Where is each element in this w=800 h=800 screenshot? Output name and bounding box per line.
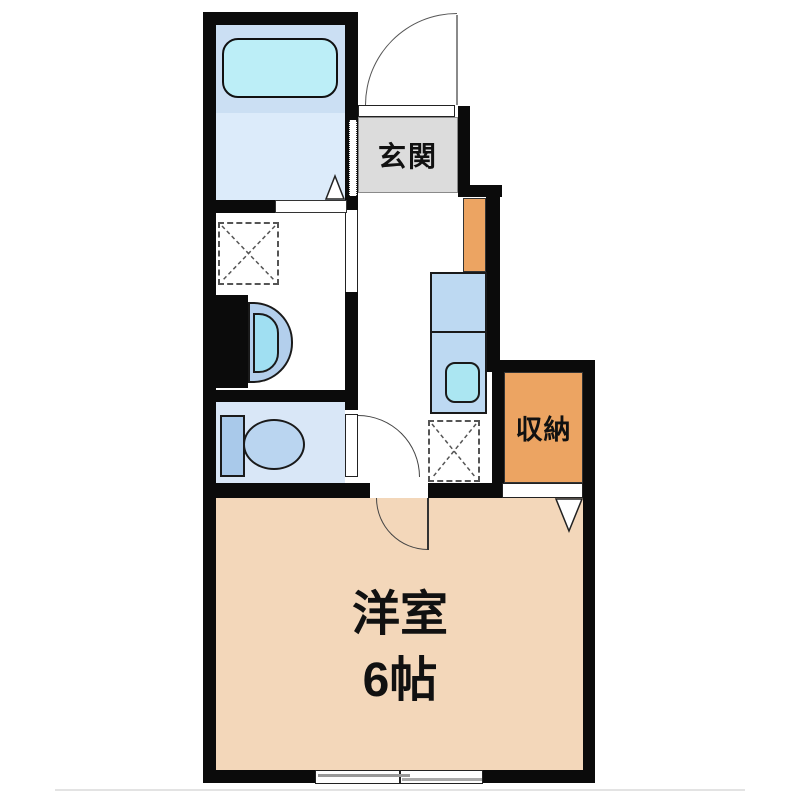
wall	[428, 483, 502, 498]
room-door-leaf	[427, 498, 429, 550]
wall	[203, 12, 358, 25]
floorplan: 玄関 収納 洋室 6帖	[0, 0, 800, 800]
washbasin-bowl-icon	[253, 313, 279, 373]
wall-column	[216, 295, 248, 388]
sliding-door-pocket	[349, 120, 357, 196]
storage-label-text: 収納	[516, 408, 572, 447]
wall	[458, 106, 470, 193]
wall	[216, 200, 275, 213]
entrance-door-swing-arc	[365, 13, 457, 105]
wall	[203, 483, 370, 498]
toilet-door-leaf	[345, 414, 358, 477]
bath-door-opening	[275, 200, 347, 213]
kitchen-strip	[463, 198, 486, 272]
room-size-text: 6帖	[363, 648, 438, 714]
sliding-window-pane-line	[318, 774, 410, 777]
kitchen-sink-icon	[445, 362, 480, 403]
sliding-door	[345, 210, 358, 292]
wall	[216, 390, 358, 402]
storage-opening	[502, 483, 583, 498]
image-edge-line	[55, 789, 745, 791]
bathtub-icon	[222, 38, 338, 98]
wall	[203, 12, 216, 783]
counter-divider	[432, 331, 485, 333]
entrance-door-leaf	[456, 15, 458, 105]
genkan-label: 玄関	[358, 117, 458, 193]
sliding-window-pane-line	[402, 778, 482, 781]
room-name-text: 洋室	[352, 582, 448, 648]
sliding-window-divider	[399, 770, 401, 784]
wall	[492, 372, 504, 498]
storage-label: 収納	[504, 372, 583, 483]
kitchen-counter-icon	[430, 272, 487, 414]
bath-door-marker-icon	[324, 174, 346, 201]
entrance-door-sill	[358, 105, 455, 117]
toilet-tank-icon	[220, 415, 245, 477]
wall	[486, 193, 500, 372]
western-room-label: 洋室 6帖	[280, 578, 520, 718]
refrigerator-space-icon	[428, 420, 480, 482]
wall	[486, 360, 595, 372]
wall	[583, 360, 595, 783]
washing-machine-space-icon	[218, 222, 279, 285]
genkan-label-text: 玄関	[378, 135, 438, 175]
toilet-bowl-icon	[243, 419, 305, 470]
storage-door-marker-icon	[554, 497, 584, 533]
